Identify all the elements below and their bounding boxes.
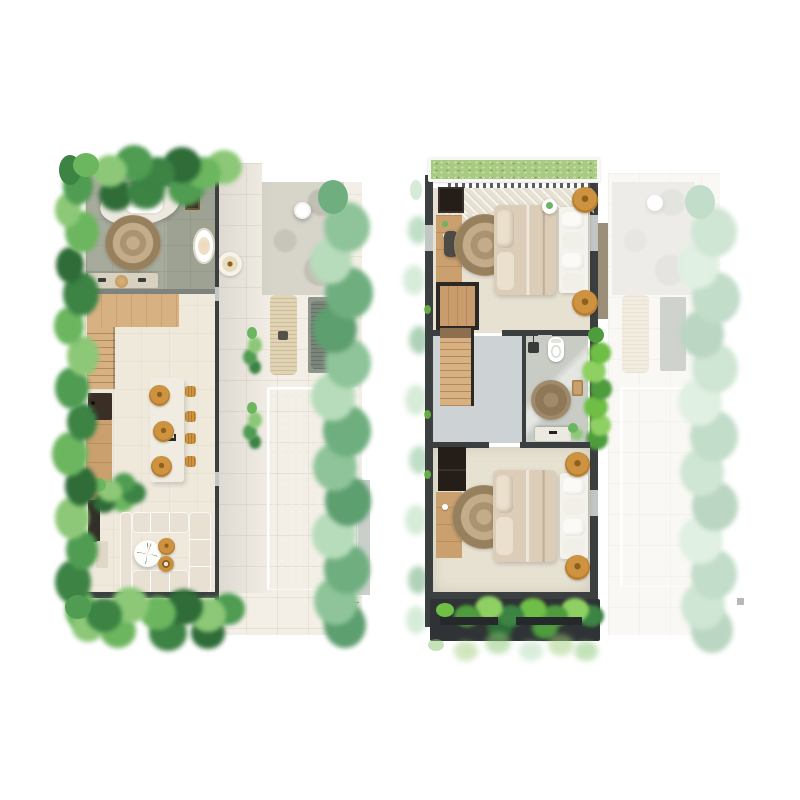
- sofa-arm: [120, 512, 132, 592]
- plant-table: [542, 199, 557, 214]
- sun-lounger-2: [308, 297, 334, 373]
- side-table-1a: [572, 187, 598, 213]
- sun-lounger-1: [270, 295, 297, 375]
- floor-drain: [338, 598, 347, 607]
- upper-floor-plan: [420, 155, 765, 660]
- bathroom-shelf: [572, 380, 583, 396]
- bedroom-2-wall-b: [520, 442, 590, 448]
- ghost-round-table: [647, 195, 663, 211]
- outdoor-round-table: [294, 202, 311, 219]
- side-table-2b: [565, 555, 590, 580]
- washbasin-vanity: [535, 427, 571, 441]
- side-bathtub: [193, 228, 215, 264]
- side-table-1b: [572, 290, 598, 316]
- bathroom-wall-top-b: [552, 330, 590, 336]
- kitchen-range: [88, 393, 112, 420]
- wood-landing: [87, 294, 179, 327]
- ground-floor-plan: [63, 155, 375, 660]
- shower-head: [528, 342, 539, 353]
- rattan-pendant-light: [218, 252, 242, 276]
- ghost-garden-left: [410, 180, 422, 200]
- garden-top: [73, 153, 99, 177]
- door-opening-2: [215, 472, 219, 486]
- bathroom-rug: [531, 380, 571, 420]
- right-window-1: [590, 215, 598, 251]
- dining-cushion-1: [185, 386, 196, 397]
- bed-2: [493, 470, 556, 562]
- side-table: [96, 541, 108, 568]
- sofa-seat-row: [132, 570, 189, 593]
- rattan-stool-3: [151, 456, 172, 477]
- coffee-table: [134, 540, 161, 567]
- dining-cushion-3: [185, 433, 196, 444]
- toilet: [548, 337, 564, 362]
- planter-strip: [588, 327, 604, 343]
- staircase: [87, 327, 115, 389]
- deck-plant-2: [247, 402, 257, 414]
- bathroom-wall-top-a: [526, 330, 538, 336]
- ghost-lounger-1: [622, 295, 649, 373]
- bottom-wall: [86, 592, 219, 598]
- facade-wall: [215, 163, 219, 600]
- pouf-1: [158, 538, 175, 555]
- freestanding-bathtub: [123, 193, 165, 215]
- pouf-2: [158, 556, 174, 572]
- foot-bench-2: [560, 473, 588, 559]
- upper-staircase: [440, 336, 471, 406]
- terrace-notch: [262, 155, 375, 182]
- garden-bottom: [65, 595, 91, 619]
- stair-void: [436, 282, 479, 330]
- boundary-wall: [356, 480, 370, 595]
- right-window-2: [590, 490, 598, 516]
- planter-bar-2: [516, 617, 582, 625]
- deck-plant-1: [247, 327, 257, 339]
- sofa-back-row: [132, 512, 189, 533]
- plant-overflow: [428, 639, 444, 651]
- bedroom-2-bottom-wall: [433, 592, 590, 599]
- ghost-pool: [620, 387, 704, 587]
- planter-bar-1: [440, 617, 498, 625]
- foot-bench-1: [559, 207, 588, 293]
- dining-cushion-2: [185, 411, 196, 422]
- balcony-plants: [436, 603, 454, 617]
- rattan-stool-2: [153, 421, 174, 442]
- wall-plant-1: [424, 305, 431, 314]
- bed-1: [494, 205, 556, 295]
- door-opening-1: [215, 287, 219, 301]
- dining-cushion-4: [185, 456, 196, 467]
- vanity-plant: [568, 423, 578, 433]
- swimming-pool: [267, 387, 358, 590]
- roof-grass: [431, 160, 597, 179]
- wood-shelf: [185, 195, 200, 210]
- wall-plant-2: [424, 410, 431, 419]
- floor-plan-sheet: [0, 0, 800, 800]
- garden-right: [318, 180, 348, 214]
- bathroom-round-rug: [105, 215, 161, 271]
- side-table-2a: [565, 452, 590, 477]
- sofa-chaise: [189, 512, 211, 593]
- rattan-stool-1: [149, 385, 170, 406]
- ghost-drain: [737, 598, 744, 605]
- kitchen-cabinet: [88, 500, 100, 542]
- ghost-lounger-2: [660, 297, 686, 371]
- wardrobe-2: [438, 447, 466, 491]
- green-roof-strip: [428, 157, 600, 182]
- ground-floor-ghost: [598, 173, 750, 645]
- wardrobe-1: [438, 187, 464, 213]
- vanity-stool: [115, 275, 128, 288]
- exterior-ledge: [597, 223, 608, 319]
- indoor-plant: [90, 478, 106, 492]
- left-window: [425, 225, 433, 251]
- wall-plant-3: [424, 470, 431, 479]
- ghost-garden-right: [685, 185, 715, 219]
